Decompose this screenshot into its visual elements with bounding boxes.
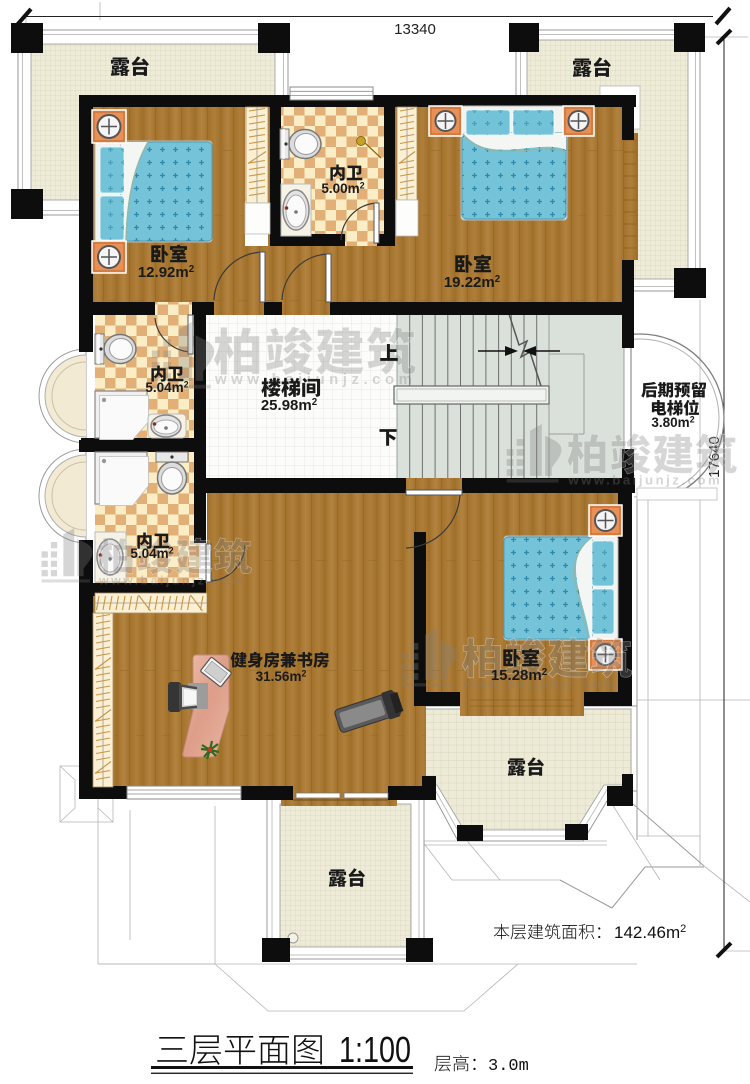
svg-text:1:100: 1:100 [339,1029,411,1070]
svg-text:12.92m2: 12.92m2 [138,264,195,281]
svg-text:5.04m2: 5.04m2 [130,545,173,561]
svg-text:13340: 13340 [394,21,436,38]
svg-text:19.22m2: 19.22m2 [444,274,501,291]
svg-text:3.80m2: 3.80m2 [651,414,694,430]
svg-text:142.46m2: 142.46m2 [614,923,686,942]
svg-text:15.28m2: 15.28m2 [491,667,548,684]
svg-text:25.98m2: 25.98m2 [261,397,318,414]
svg-text:31.56m2: 31.56m2 [256,668,307,684]
svg-text:5.04m2: 5.04m2 [145,379,188,395]
svg-text:5.00m2: 5.00m2 [321,180,364,196]
svg-text:www.baijunjz.com: www.baijunjz.com [567,473,722,488]
svg-text:www.baijunjz.com: www.baijunjz.com [98,574,245,588]
svg-text:3.0m: 3.0m [488,1057,529,1076]
